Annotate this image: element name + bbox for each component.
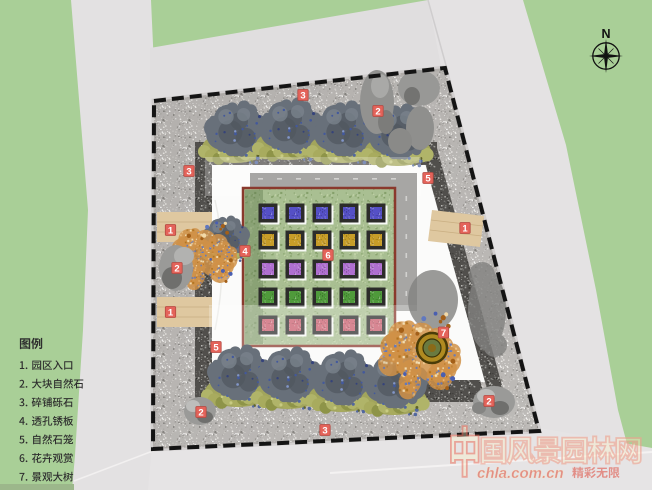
svg-text:2: 2	[174, 264, 179, 275]
svg-text:6: 6	[325, 251, 330, 262]
svg-text:3: 3	[186, 167, 191, 178]
svg-text:3: 3	[300, 91, 305, 102]
svg-text:5: 5	[425, 174, 431, 185]
svg-text:N: N	[601, 27, 610, 41]
svg-text:4: 4	[242, 247, 248, 258]
svg-text:2: 2	[198, 408, 203, 419]
svg-text:3: 3	[322, 426, 327, 437]
svg-text:1: 1	[462, 224, 468, 235]
svg-text:7: 7	[441, 328, 446, 339]
svg-text:2: 2	[375, 107, 380, 118]
svg-text:1: 1	[168, 226, 174, 237]
svg-text:2: 2	[486, 397, 491, 408]
svg-text:chla.com.cn: chla.com.cn	[477, 465, 564, 482]
svg-text:5: 5	[213, 343, 219, 354]
svg-text:1: 1	[168, 308, 174, 319]
